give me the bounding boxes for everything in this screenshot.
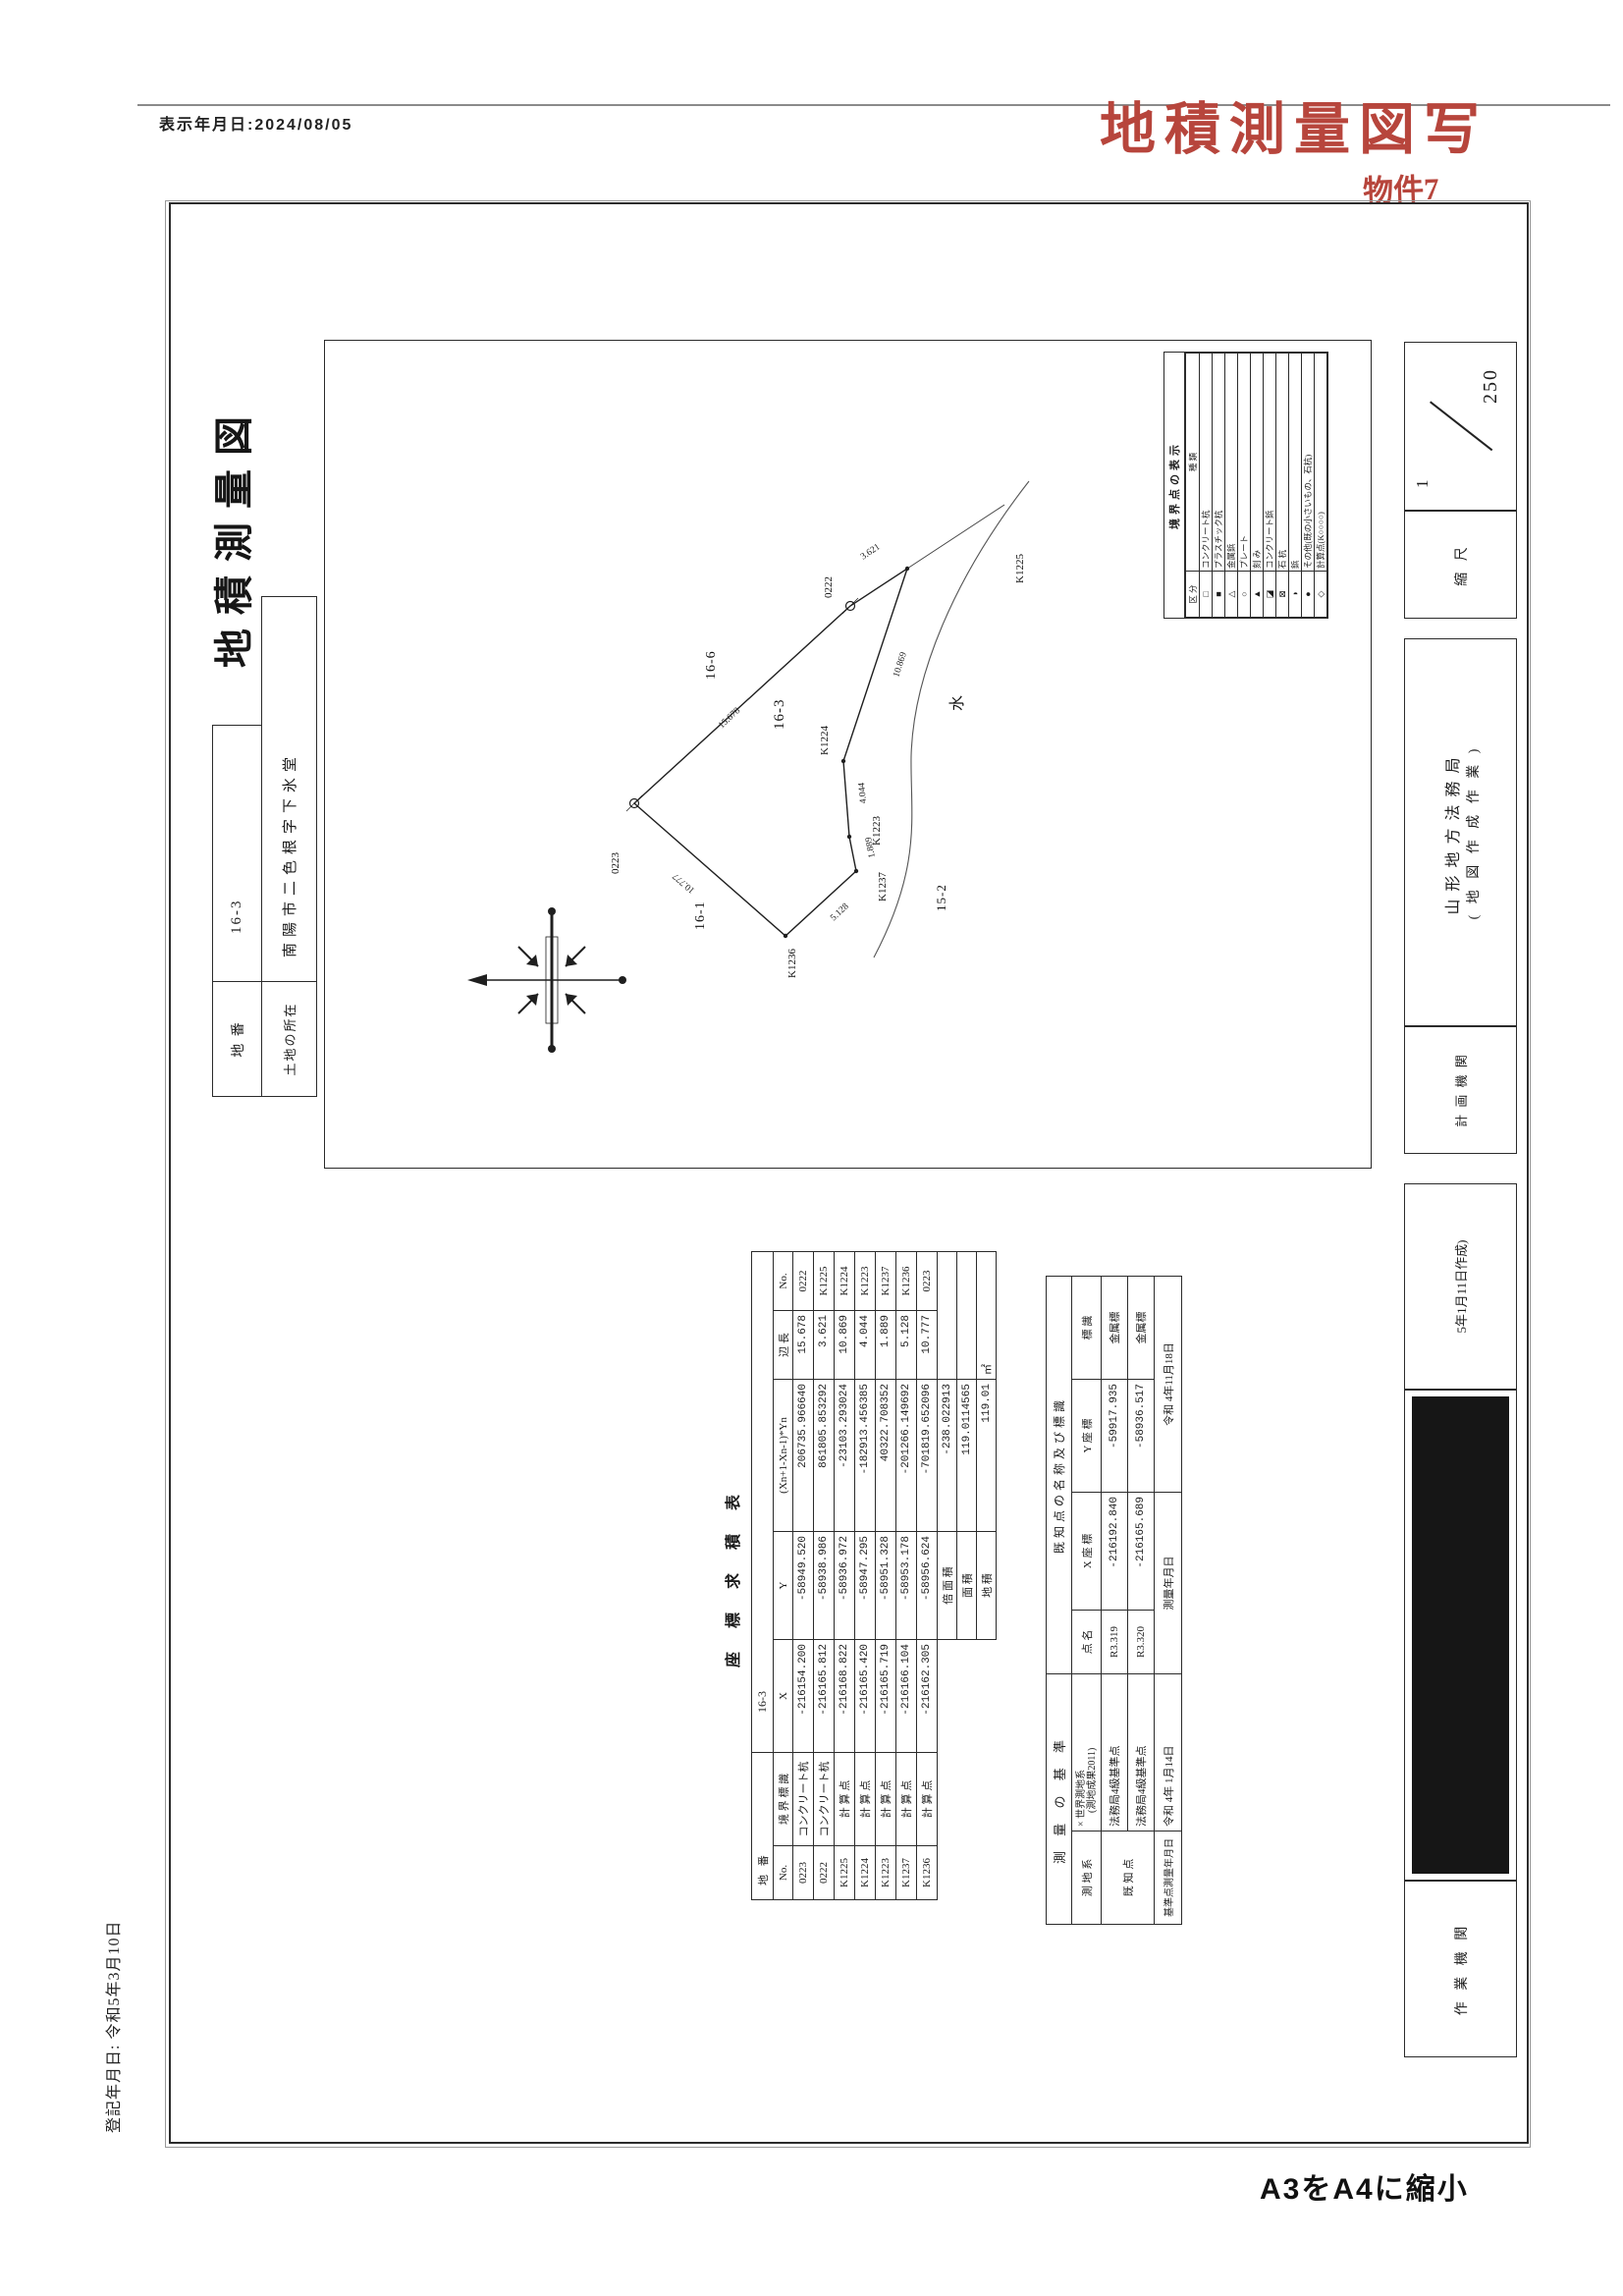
working-agency-label: 作 業 機 関 (1404, 1881, 1517, 2057)
legend-symbol-icon: ○ (1238, 572, 1251, 618)
legend-symbol-icon: ⊠ (1276, 572, 1289, 618)
known-point-id: R3.320 (1128, 1610, 1155, 1673)
col-y: Y (774, 1532, 793, 1640)
calc-point-marker (784, 934, 787, 938)
legend-label: コンクリート鋲 (1264, 354, 1276, 572)
planning-agency-org: 山形地方法務局 (1439, 750, 1463, 915)
legend-label: プレート (1238, 354, 1251, 572)
scale-slash (1430, 402, 1492, 451)
rotated-document-layer: 登記年月日: 令和5年3月10日 地積測量図 地 番 16-3 土地の所在 南陽… (88, 147, 1561, 2190)
edge-length-label: 10.777 (672, 870, 697, 895)
col-no: No. (774, 1846, 793, 1900)
coordinate-row: K1224計 算 点-216165.420-58947.295-182913.4… (855, 1251, 876, 1899)
x-coord-label: X 座 標 (1072, 1492, 1102, 1610)
calc-point-marker (841, 759, 845, 763)
legend-label: 刻 み (1251, 354, 1264, 572)
point-name-label: 点 名 (1072, 1610, 1102, 1673)
legend-symbol-icon: □ (1200, 572, 1213, 618)
location-label: 土地の所在 (262, 982, 317, 1097)
boundary-legend: 境界点の表示 区 分 種 類 □コンクリート杭■プラスチック杭△金属鋲○プレート… (1163, 352, 1328, 619)
legend-symbol-icon: ▲ (1251, 572, 1264, 618)
parcel-label: 16-3 (772, 699, 787, 731)
legend-label: 石 杭 (1276, 354, 1289, 572)
col-no2: No. (774, 1251, 793, 1310)
coordinate-row: 0222コンクリート杭-216165.812-58938.986861805.8… (814, 1251, 835, 1899)
point-name-label: K1225 (1014, 554, 1026, 583)
document-title: 地積測量図 (202, 363, 259, 668)
legend-symbol-icon: ◇ (1315, 572, 1327, 618)
legend-row: ◪コンクリート鋲 (1264, 354, 1276, 618)
known-point-name: 法務局4級基準点 (1128, 1673, 1155, 1831)
scale-value: 1 250 (1404, 342, 1517, 511)
point-name-label: K1236 (786, 949, 798, 978)
col-product: (Xn+1-Xn-1)*Yn (774, 1380, 793, 1532)
known-point-marker: 金属標 (1128, 1276, 1155, 1379)
known-point-marker: 金属標 (1102, 1276, 1128, 1379)
legend-row: ■プラスチック杭 (1213, 354, 1225, 618)
planning-agency-value: 山形地方法務局 ( 地 図 作 成 作 業 ) (1404, 638, 1517, 1026)
legend-row: ●その他(既の小さいもの、石杭) (1302, 354, 1315, 618)
legend-row: ⊠石 杭 (1276, 354, 1289, 618)
scanned-cadastral-page: 表示年月日:2024/08/05 地積測量図写 物件7 A3をA4に縮小 登記年… (0, 0, 1623, 2296)
legend-symbol-icon: ◑ (1289, 572, 1302, 618)
parcel-number-value: 16-3 (213, 726, 262, 982)
known-point-id: R3.319 (1102, 1610, 1128, 1673)
legend-row: ▲刻 み (1251, 354, 1264, 618)
legend-symbol-icon: ● (1302, 572, 1315, 618)
legend-col-symbol: 区 分 (1186, 572, 1200, 618)
point-name-label: 0223 (610, 852, 622, 875)
known-point-y: -59917.935 (1102, 1379, 1128, 1492)
base-date: 令和 4年 1月14日 (1155, 1673, 1182, 1831)
calc-point-marker (847, 835, 851, 839)
coordinate-area-table: 地 番 16-3 No. 境 界 標 識 X Y (Xn+1-Xn-1)*Yn … (751, 1251, 997, 1900)
legend-table: 区 分 種 類 □コンクリート杭■プラスチック杭△金属鋲○プレート▲刻 み◪コン… (1185, 353, 1327, 618)
parcel-label: 16-6 (704, 650, 719, 680)
coordinate-table-title: 座 標 求 積 表 (720, 1252, 743, 1900)
parcel-label: 水 (948, 694, 966, 711)
legend-col-kind: 種 類 (1186, 354, 1200, 572)
legend-row: □コンクリート杭 (1200, 354, 1213, 618)
edge-length-label: 5.128 (829, 902, 851, 923)
legend-row: ○プレート (1238, 354, 1251, 618)
registration-date: 登記年月日: 令和5年3月10日 (100, 1921, 124, 2133)
edge-length-label: 10.869 (892, 651, 909, 679)
point-name-label: K1224 (819, 726, 831, 755)
planning-agency-org2: ( 地 図 作 成 作 業 ) (1463, 745, 1483, 920)
edge-length-label: 3.621 (859, 542, 883, 562)
location-value: 南陽市二色根字下氷堂 (262, 597, 317, 982)
legend-title: 境界点の表示 (1164, 353, 1185, 618)
legend-symbol-icon: ■ (1213, 572, 1225, 618)
point-name-label: 0222 (823, 576, 835, 598)
known-point-x: -216165.689 (1128, 1492, 1155, 1610)
basis-header-left: 測 量 の 基 準 (1047, 1673, 1072, 1924)
scale-label: 縮 尺 (1404, 511, 1517, 619)
col-x: X (774, 1640, 793, 1753)
legend-symbol-icon: △ (1225, 572, 1238, 618)
calc-point-marker (854, 869, 858, 873)
known-point-y: -58936.517 (1128, 1379, 1155, 1492)
marker-label: 標 識 (1072, 1276, 1102, 1379)
coordinate-row: K1236計 算 点-216162.305-58956.624-701819.6… (917, 1251, 938, 1899)
survey-parcel-label: 地 番 (752, 1753, 774, 1900)
legend-label: 金属鋲 (1225, 354, 1238, 572)
survey-parcel-no: 16-3 (752, 1251, 774, 1752)
area-summary-row: 面 積119.0114565 (957, 1251, 977, 1899)
legend-label: その他(既の小さいもの、石杭) (1302, 354, 1315, 572)
legend-label: 計算点(K○○○○) (1315, 354, 1327, 572)
coordinate-row: 0223コンクリート杭-216154.200-58949.520206735.9… (793, 1251, 814, 1899)
base-date-label: 基準点測量年月日 (1155, 1831, 1182, 1925)
edge-length-label: 15.678 (717, 706, 742, 731)
coordinate-row: K1225計 算 点-216168.822-58936.972-23103.29… (835, 1251, 855, 1899)
coordinate-row: K1223計 算 点-216165.719-58951.32840322.708… (876, 1251, 896, 1899)
col-marker: 境 界 標 識 (774, 1753, 793, 1846)
edge-length-label: 4.044 (857, 782, 869, 803)
y-coord-label: Y 座 標 (1072, 1379, 1102, 1492)
geodetic-mark: × (1076, 1821, 1087, 1827)
col-length: 辺 長 (774, 1311, 793, 1380)
legend-label: コンクリート杭 (1200, 354, 1213, 572)
survey-date: 令和 4年11月18日 (1155, 1276, 1182, 1492)
point-name-label: K1237 (877, 872, 889, 902)
parcel-label: 15-2 (934, 884, 948, 911)
created-date-note: 5年1月11日作成) (1404, 1183, 1517, 1390)
parcel-location-table: 土地の所在 南陽市二色根字下氷堂 (261, 596, 317, 1097)
geodetic-label: 測 地 系 (1072, 1831, 1102, 1925)
basis-header-right: 既知点の名称及び標識 (1047, 1276, 1072, 1673)
planning-agency-label: 計 画 機 関 (1404, 1026, 1517, 1154)
water-bank-line (874, 481, 1029, 957)
legend-label: プラスチック杭 (1213, 354, 1225, 572)
legend-row: ◇計算点(K○○○○) (1315, 354, 1327, 618)
coordinate-row: K1237計 算 点-216166.104-58953.178-201266.1… (896, 1251, 917, 1899)
known-point-x: -216192.840 (1102, 1492, 1128, 1610)
area-summary-row: 倍 面 積-238.022913 (938, 1251, 957, 1899)
scale-denominator: 250 (1480, 368, 1502, 404)
north-compass-icon (467, 907, 626, 1053)
scale-numerator: 1 (1413, 480, 1433, 489)
known-point-name: 法務局4級基準点 (1102, 1673, 1128, 1831)
legend-row: △金属鋲 (1225, 354, 1238, 618)
parcel-number-label: 地 番 (213, 982, 262, 1097)
legend-label: 鋲 (1289, 354, 1302, 572)
marker-tick (842, 598, 858, 614)
scale-fraction: 1 250 (1405, 343, 1516, 510)
parcel-label: 16-1 (693, 901, 708, 930)
display-date: 表示年月日:2024/08/05 (159, 111, 352, 135)
survey-basis-table: 測 量 の 基 準 既知点の名称及び標識 測 地 系 × 世界測地系 (測地成果… (1046, 1276, 1182, 1925)
calc-point-marker (905, 567, 909, 571)
redaction-box (1412, 1396, 1509, 1874)
legend-row: ◑鋲 (1289, 354, 1302, 618)
survey-date-label: 測量年月日 (1155, 1492, 1182, 1673)
parcel-number-table: 地 番 16-3 (212, 725, 262, 1097)
area-summary-row: 地 積119.01㎡ (977, 1251, 997, 1899)
geodetic-value: × 世界測地系 (測地成果2011) (1072, 1673, 1102, 1831)
legend-symbol-icon: ◪ (1264, 572, 1276, 618)
known-point-label: 既 知 点 (1102, 1831, 1155, 1925)
